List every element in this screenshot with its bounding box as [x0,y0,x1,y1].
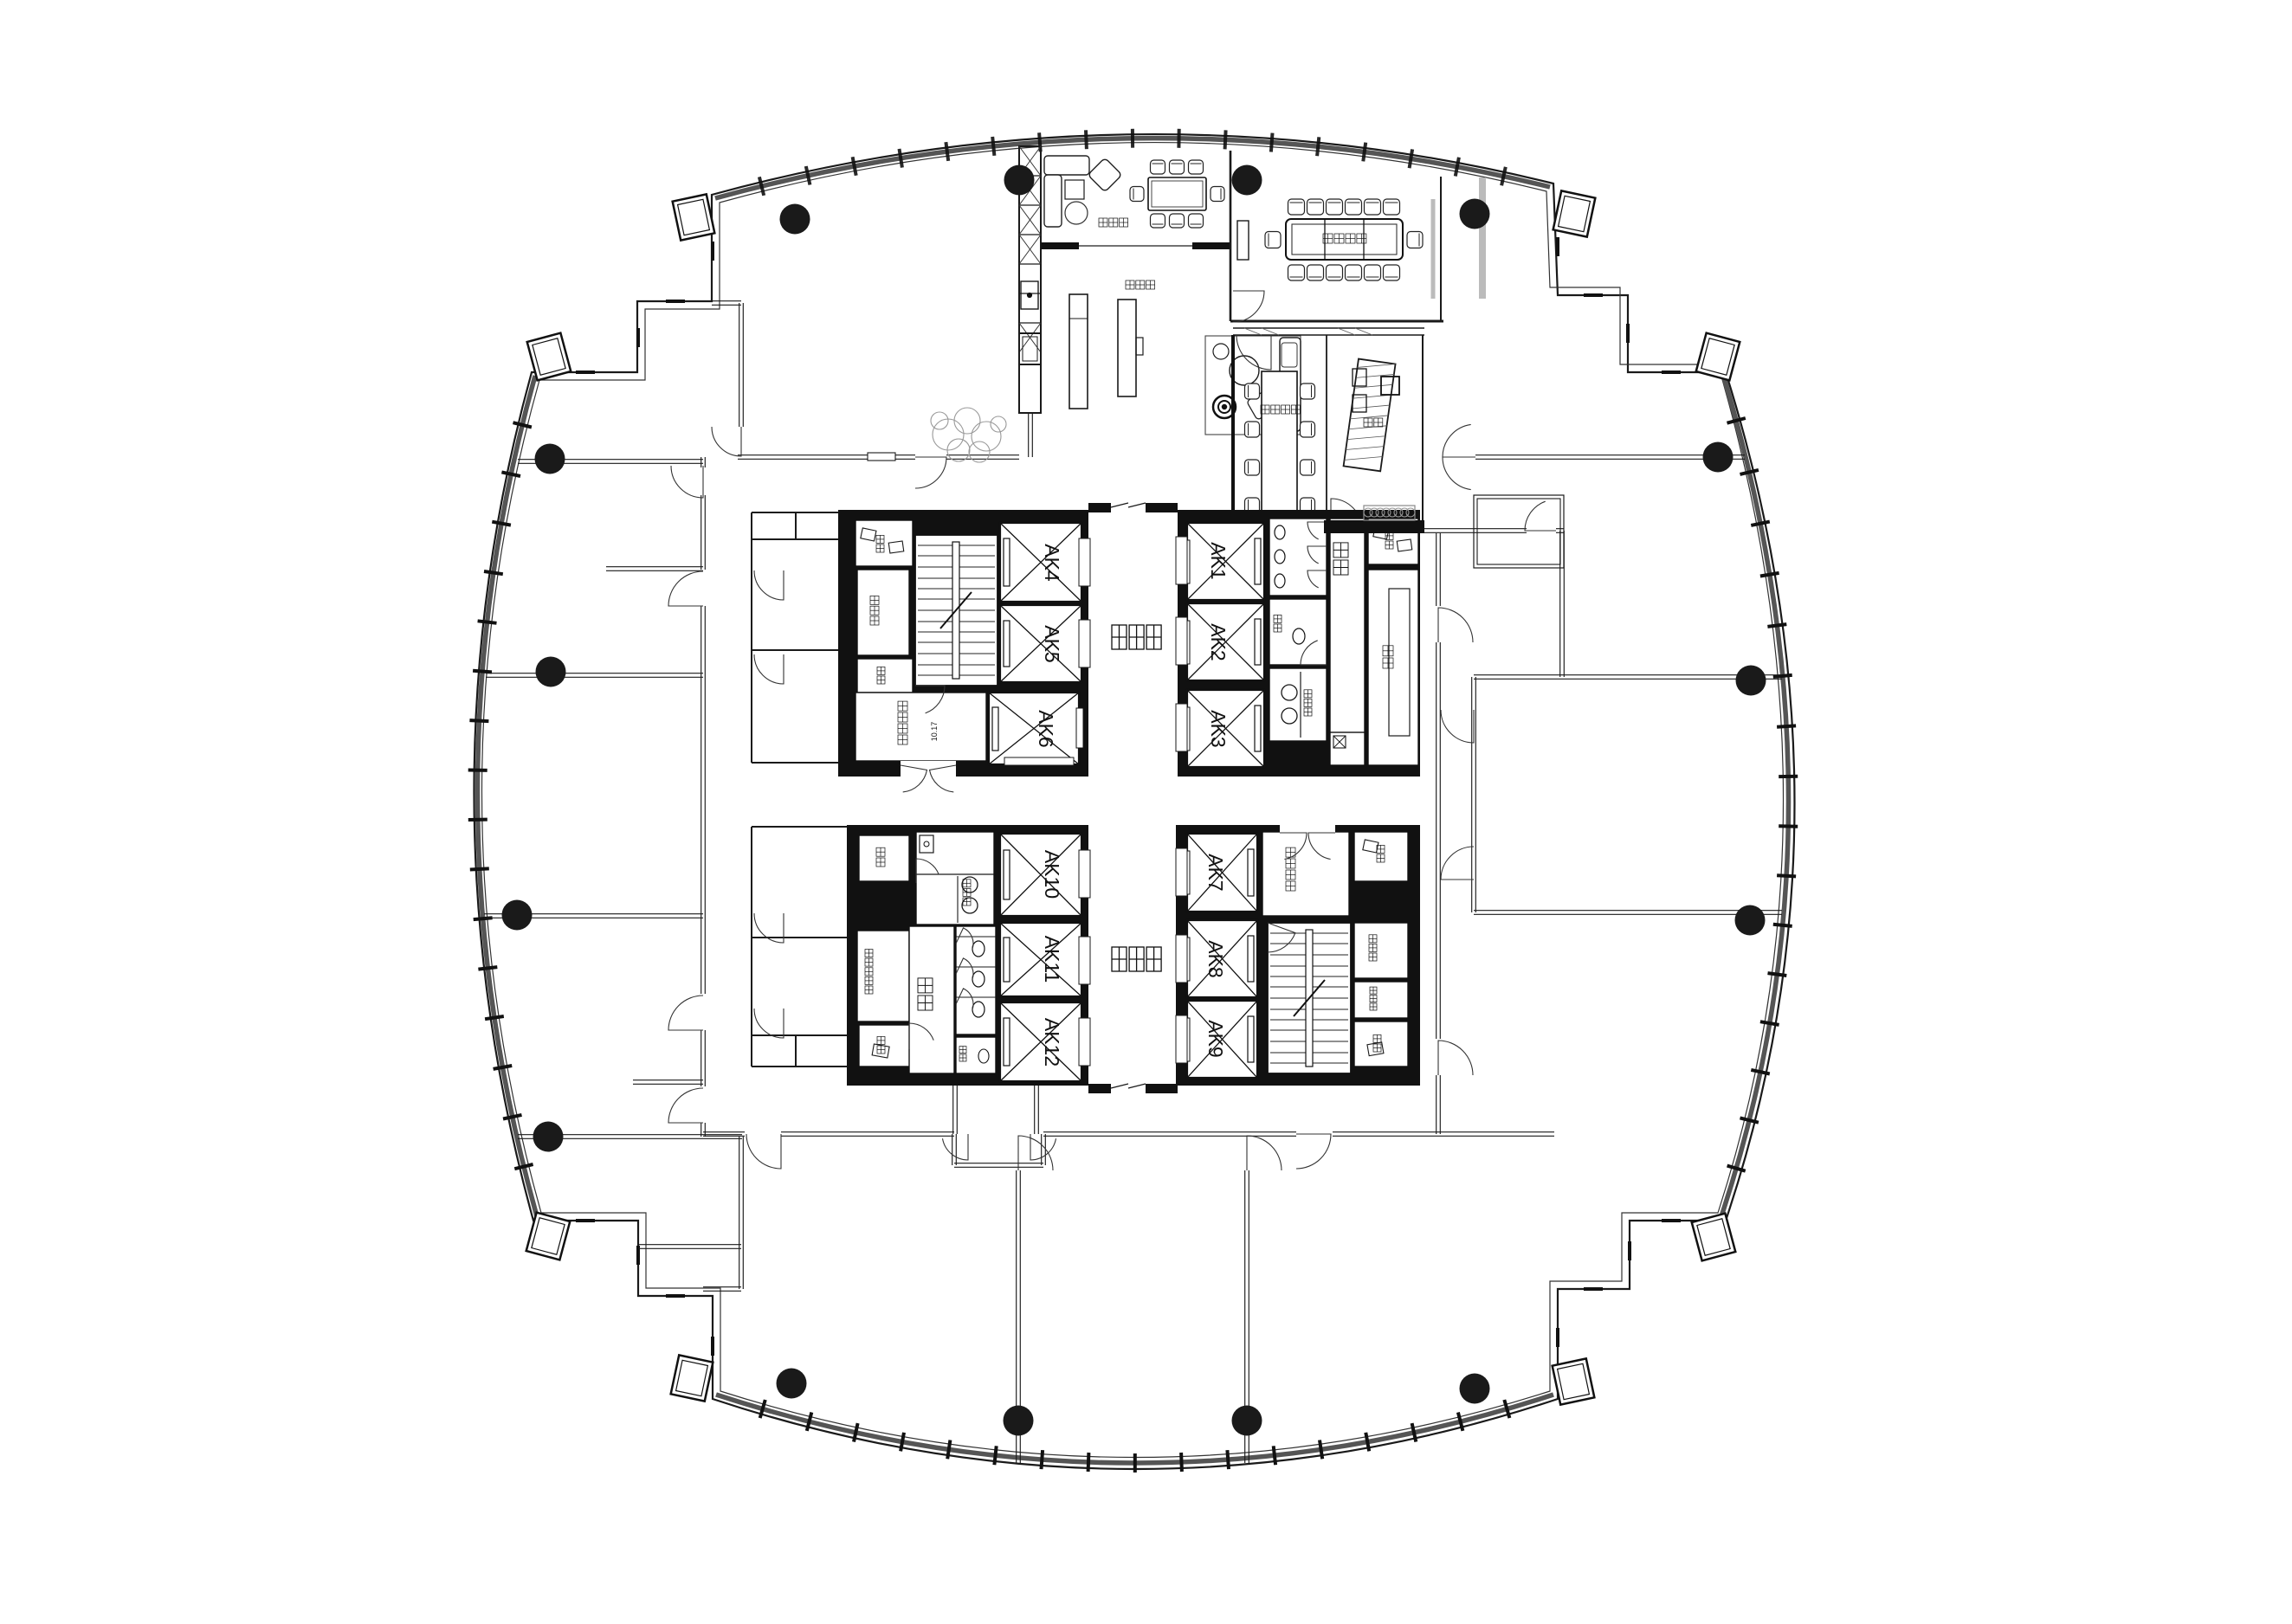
svg-text:AK8: AK8 [1204,940,1227,977]
svg-text:AK2: AK2 [1207,623,1230,661]
svg-text:AK7: AK7 [1204,854,1227,891]
svg-text:AK11: AK11 [1041,936,1063,983]
svg-text:AK1: AK1 [1207,542,1230,579]
svg-text:AK10: AK10 [1041,850,1063,899]
svg-text:AK6: AK6 [1035,710,1057,747]
svg-text:AK12: AK12 [1041,1018,1063,1067]
svg-text:AK9: AK9 [1204,1020,1227,1057]
svg-text:AK3: AK3 [1207,710,1230,747]
svg-text:10.17: 10.17 [930,722,939,742]
svg-text:AK4: AK4 [1041,544,1063,582]
svg-text:AK5: AK5 [1041,625,1063,662]
